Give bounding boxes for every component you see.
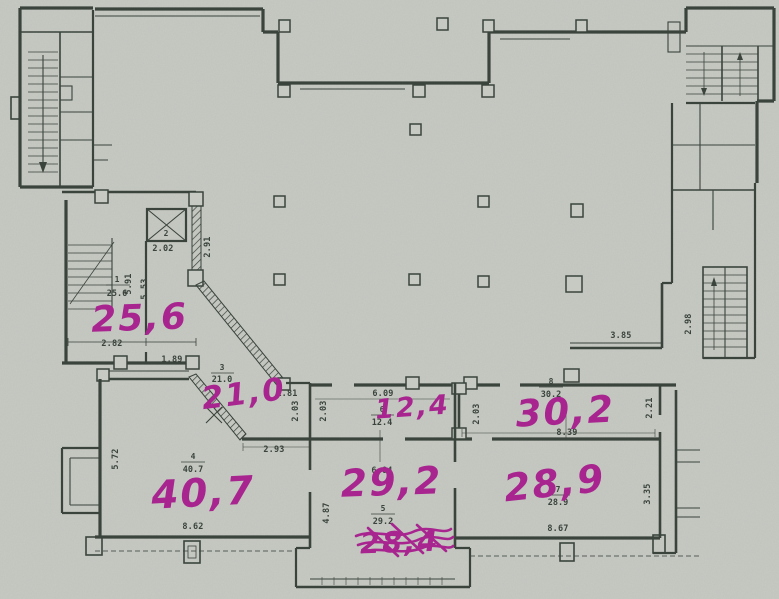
dim-room8-left: 2.03 bbox=[472, 403, 482, 424]
dim-room7-right: 3.35 bbox=[643, 483, 653, 504]
room1-area: 25.6 bbox=[107, 289, 127, 299]
dim-room1-width-a: 2.82 bbox=[101, 339, 122, 349]
dim-corridor-wall-b: 2.03 bbox=[319, 400, 329, 421]
handwritten-area-room1: 25,6 bbox=[90, 296, 188, 340]
handwritten-area-room4: 40,7 bbox=[149, 468, 256, 518]
floorplan-svg: 2.02 2.91 5.91 5.53 2.82 1.89 1.81 2.03 … bbox=[0, 0, 779, 599]
room8-number: 8 bbox=[549, 377, 554, 386]
handwritten-area-room6: 12,4 bbox=[374, 389, 451, 425]
dim-room8-right: 2.21 bbox=[645, 397, 655, 418]
dim-lobby-wall: 2.91 bbox=[203, 236, 213, 257]
dim-room4-bottom: 8.62 bbox=[182, 522, 203, 532]
dim-room4-top: 2.93 bbox=[263, 445, 284, 455]
dim-room4-left: 5.72 bbox=[111, 448, 121, 469]
scanned-floor-plan: 2.02 2.91 5.91 5.53 2.82 1.89 1.81 2.03 … bbox=[0, 0, 779, 599]
dim-room7-bottom: 8.67 bbox=[547, 524, 568, 534]
dim-room1-depth-b: 5.53 bbox=[140, 278, 150, 299]
room1-number: 1 bbox=[115, 275, 120, 284]
room3-number: 3 bbox=[220, 363, 225, 372]
dim-hall-shaft: 2.98 bbox=[684, 313, 694, 334]
room5-number: 5 bbox=[381, 504, 386, 513]
dim-corridor-wall-a: 2.03 bbox=[291, 400, 301, 421]
crossed-out-annotation: 28,4 bbox=[356, 524, 453, 561]
dim-elevator-width: 2.02 bbox=[152, 244, 173, 254]
dim-hall-niche: 3.85 bbox=[610, 331, 631, 341]
handwritten-area-room5: 29,2 bbox=[340, 458, 443, 506]
dim-room5-depth: 4.87 bbox=[322, 502, 332, 523]
room4-number: 4 bbox=[191, 452, 196, 461]
room2-number: 2 bbox=[164, 229, 169, 238]
dim-room1-width-b: 1.89 bbox=[161, 355, 182, 365]
handwritten-area-room8: 30,2 bbox=[515, 387, 616, 435]
